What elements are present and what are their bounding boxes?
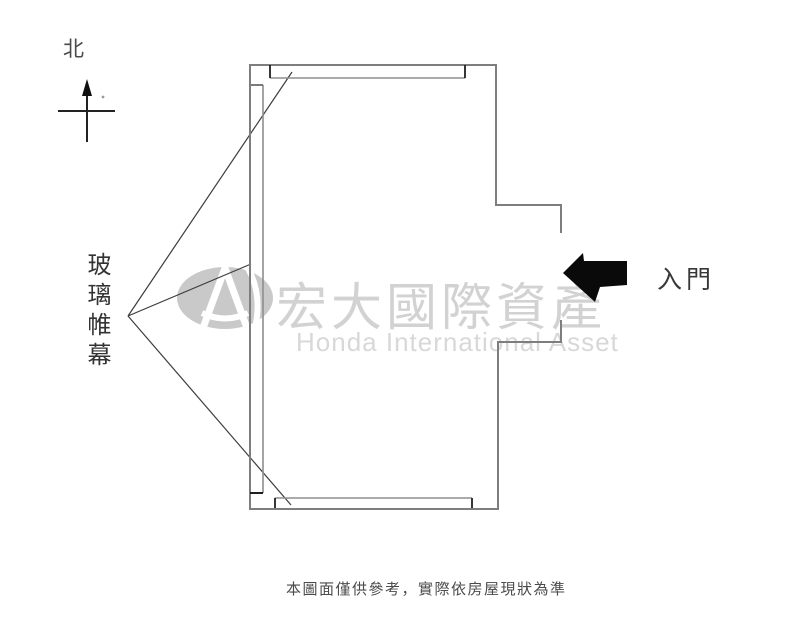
glass-strip-top (270, 65, 465, 78)
floorplan-drawing (0, 0, 800, 619)
glass-strip-left (250, 85, 263, 493)
floorplan-page: 宏大國際資產 Honda International Asset (0, 0, 800, 619)
compass-north-icon (58, 79, 115, 142)
entry-label: 入門 (657, 260, 715, 296)
outer-wall (249, 65, 561, 510)
disclaimer-caption: 本圖面僅供參考，實際依房屋現狀為準 (286, 578, 567, 599)
glass-strip-bottom (275, 498, 472, 508)
entry-arrow-icon (563, 253, 627, 302)
glass-curtain-leader-lines (128, 72, 292, 505)
north-label: 北 (63, 33, 84, 63)
glass-curtain-label: 玻璃帷幕 (82, 252, 110, 372)
